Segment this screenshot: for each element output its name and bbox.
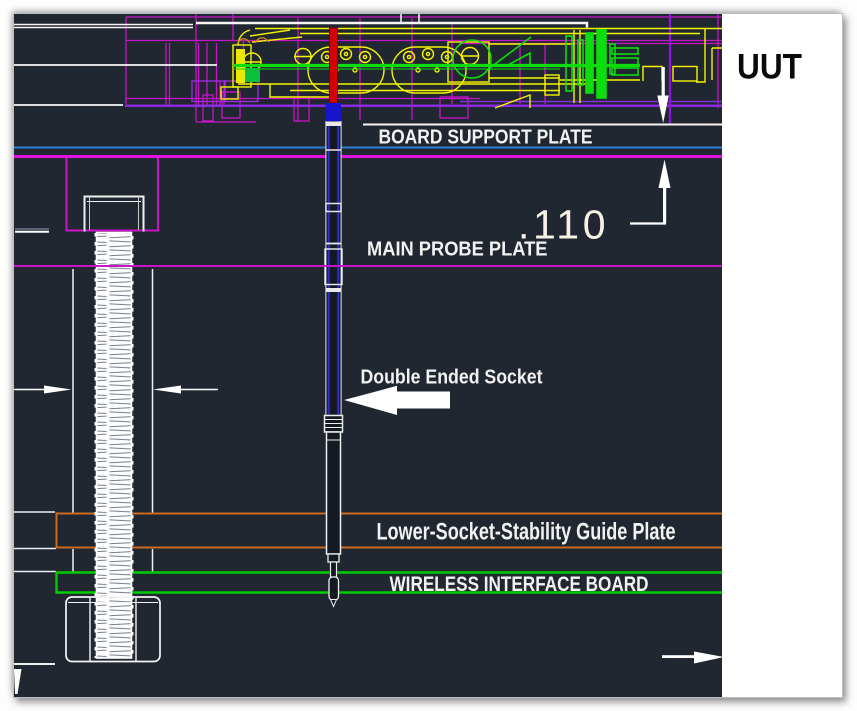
svg-text:BOARD SUPPORT PLATE: BOARD SUPPORT PLATE — [379, 127, 593, 149]
svg-text:MAIN PROBE PLATE: MAIN PROBE PLATE — [367, 239, 548, 261]
svg-text:Lower-Socket-Stability Guide P: Lower-Socket-Stability Guide Plate — [377, 519, 676, 546]
svg-text:UUT: UUT — [737, 46, 802, 86]
svg-text:WIRELESS INTERFACE BOARD: WIRELESS INTERFACE BOARD — [390, 572, 649, 596]
svg-text:Double Ended Socket: Double Ended Socket — [361, 367, 543, 389]
